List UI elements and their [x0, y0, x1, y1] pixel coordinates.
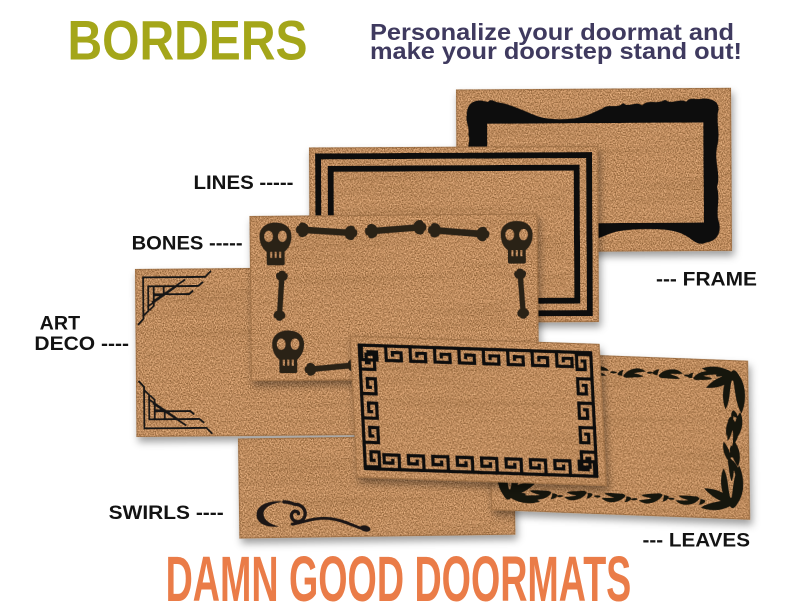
- svg-text:LINES -----: LINES -----: [194, 172, 294, 194]
- svg-text:--- LEAVES: --- LEAVES: [643, 529, 751, 551]
- svg-text:make your doorstep stand out!: make your doorstep stand out!: [370, 38, 742, 64]
- svg-text:ART: ART: [40, 313, 80, 335]
- svg-text:--- FRAME: --- FRAME: [656, 268, 757, 290]
- svg-text:DAMN GOOD DOORMATS: DAMN GOOD DOORMATS: [166, 543, 632, 611]
- svg-text:DECO ----: DECO ----: [34, 333, 129, 355]
- svg-text:BORDERS: BORDERS: [68, 9, 308, 72]
- svg-text:SWIRLS ----: SWIRLS ----: [109, 502, 224, 524]
- svg-text:BONES -----: BONES -----: [132, 232, 243, 254]
